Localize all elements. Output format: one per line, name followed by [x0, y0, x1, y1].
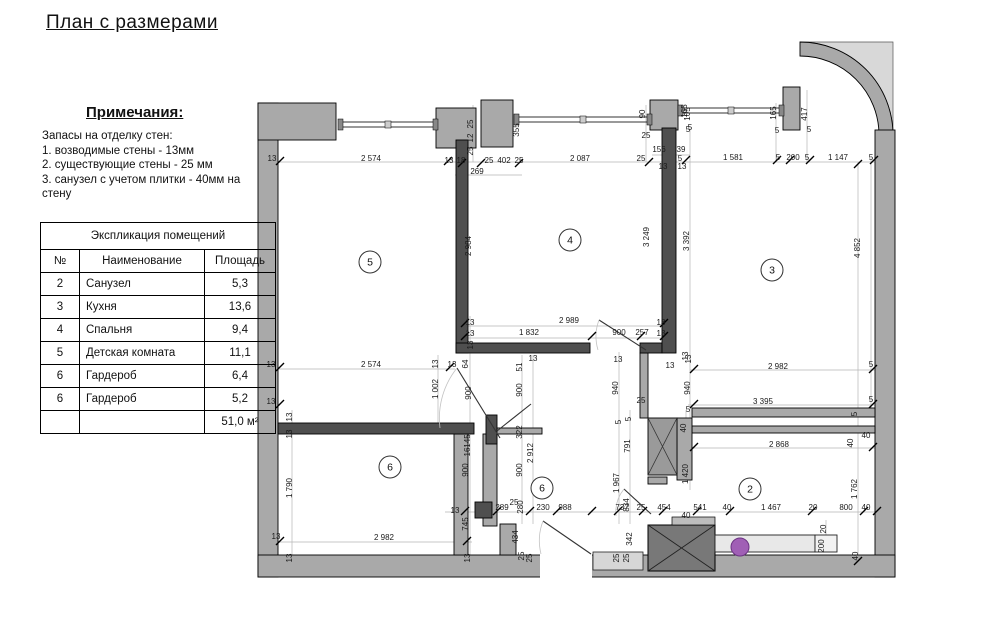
dim-label: 280 [516, 500, 525, 514]
dim-label: 2 574 [361, 360, 382, 369]
dim-label: 25 [642, 131, 651, 140]
notes-item: 1. возводимые стены - 13мм [42, 144, 272, 159]
cell-name: Спальня [80, 319, 205, 342]
dim-label: 900 [515, 463, 524, 477]
dim-label: 156 [652, 145, 666, 154]
dim-label: 13 [681, 351, 690, 360]
dim-label: 40 [846, 438, 855, 447]
cell-area: 5,3 [205, 273, 276, 296]
dim-label: 5 [624, 416, 633, 421]
cell-num: 6 [41, 365, 80, 388]
dim-label: 64 [461, 359, 470, 368]
door-entry [539, 521, 591, 554]
dim-label: 13 [285, 429, 294, 438]
pillar-3 [783, 87, 800, 130]
table-row: 3 Кухня 13,6 [41, 296, 276, 319]
notes-intro: Запасы на отделку стен: [42, 129, 272, 144]
dim-label: 145 [463, 434, 472, 448]
dim-label: 1 147 [828, 153, 849, 162]
table-title-row: Экспликация помещений [41, 223, 276, 250]
wall-top-block [481, 100, 513, 147]
cell-num: 2 [41, 273, 80, 296]
dim-label: 40 [682, 511, 691, 520]
dim-label: 1 832 [519, 328, 540, 337]
dim-label: 900 [515, 383, 524, 397]
dim-label: 20 [819, 524, 828, 533]
room-number: 6 [539, 483, 545, 495]
cell-area: 13,6 [205, 296, 276, 319]
cell-name: Кухня [80, 296, 205, 319]
dim-label: 25 [637, 154, 646, 163]
dim-label: 25 [466, 146, 475, 155]
dim-label: 900 [464, 386, 473, 400]
dim-label: 5 [869, 395, 874, 404]
dim-label: 2 868 [769, 440, 790, 449]
drain-fixture-icon [731, 538, 749, 556]
dim-label: 2 982 [374, 533, 395, 542]
dim-label: 200 [817, 539, 826, 553]
dim-label: 13 [451, 506, 460, 515]
dim-label: 51 [515, 362, 524, 371]
notes-block: Примечания: Запасы на отделку стен: 1. в… [42, 104, 272, 202]
dim-label: 90 [638, 109, 647, 118]
dim-label: 355 [512, 123, 521, 137]
table-row: 6 Гардероб 5,2 [41, 388, 276, 411]
dim-label: 5 [807, 125, 812, 134]
dim-label: 541 [693, 503, 707, 512]
dim-label: 25 [637, 396, 646, 405]
dim-labels-layer: 132 574131825402252692 08725156395131325… [267, 104, 874, 563]
dim-label: 5 [805, 153, 810, 162]
notes-item: 3. санузел с учетом плитки - 40мм на сте… [42, 173, 272, 202]
table-header-row: № Наименование Площадь [41, 250, 276, 273]
dim-label: 165 [769, 106, 778, 120]
table-total-row: 51,0 м² [41, 411, 276, 434]
dim-label: 269 [470, 167, 484, 176]
dim-label: 3 249 [642, 226, 651, 247]
dim-label: 40 [851, 551, 860, 560]
dim-label: 2 912 [526, 442, 535, 463]
dim-label: 2 982 [768, 362, 789, 371]
table-row: 2 Санузел 5,3 [41, 273, 276, 296]
dim-label: 5 [850, 411, 859, 416]
dim-label: 900 [461, 463, 470, 477]
dim-label: 13 [466, 329, 475, 338]
wall-bedroom-bottom [456, 343, 590, 353]
table-title: Экспликация помещений [41, 223, 276, 250]
dim-label: 3 395 [753, 397, 774, 406]
dim-label: 5 [869, 153, 874, 162]
room-explication-table: Экспликация помещений № Наименование Пло… [40, 222, 276, 434]
dim-label: 5 [869, 360, 874, 369]
pillar-2 [650, 100, 678, 130]
cell-name: Санузел [80, 273, 205, 296]
page-title: План с размерами [46, 12, 218, 34]
dim-label: 25 [515, 156, 524, 165]
dim-label: 434 [511, 530, 520, 544]
dim-label: 940 [611, 381, 620, 395]
cell-area: 11,1 [205, 342, 276, 365]
dim-label: 800 [839, 503, 853, 512]
dim-label: 322 [515, 425, 524, 439]
wall-bath-top [692, 426, 875, 433]
dim-label: 13 [463, 553, 472, 562]
dim-label: 2 574 [361, 154, 382, 163]
dim-label: 737 [615, 503, 629, 512]
dim-label: 2 984 [464, 235, 473, 256]
dim-label: 13 [445, 156, 454, 165]
dim-label: 16 [463, 447, 472, 456]
wall-children-bottom [278, 423, 474, 434]
dim-label: 745 [461, 517, 470, 531]
dim-label: 13 [678, 162, 687, 171]
cell-num: 3 [41, 296, 80, 319]
dim-label: 5 [686, 405, 691, 414]
dim-label: 39 [677, 145, 686, 154]
window-bedroom [514, 114, 652, 125]
dim-label: 165 [680, 104, 689, 118]
dim-label: 257 [635, 328, 649, 337]
dim-label: 13 [529, 354, 538, 363]
col-header-area: Площадь [205, 250, 276, 273]
dim-label: 13 [448, 360, 457, 369]
room-number: 4 [567, 235, 573, 247]
room-number: 2 [747, 484, 753, 496]
dim-label: 289 [495, 503, 509, 512]
table-row: 5 Детская комната 11,1 [41, 342, 276, 365]
dim-label: 1 581 [723, 153, 744, 162]
dim-label: 13 [614, 355, 623, 364]
dim-label: 2 989 [559, 316, 580, 325]
dim-label: 25 [466, 119, 475, 128]
wall-hall-right [640, 353, 648, 418]
cell-num: 4 [41, 319, 80, 342]
col-header-num: № [41, 250, 80, 273]
cell-area: 9,4 [205, 319, 276, 342]
dim-label: 13 [285, 553, 294, 562]
dim-label: 40 [862, 503, 871, 512]
dim-label: 40 [679, 423, 688, 432]
dim-label: 900 [612, 328, 626, 337]
ventilation-shaft-upper [648, 418, 677, 475]
bathtub [715, 535, 815, 552]
dim-label: 18 [457, 156, 466, 165]
ventilation-shaft-lower [648, 517, 715, 571]
wall-kitchen-bottom [692, 408, 875, 417]
dim-label: 5 [776, 153, 781, 162]
wall-shaft-jamb [648, 477, 667, 484]
entry-opening [540, 553, 592, 579]
dim-label: 13 [466, 340, 475, 349]
notes-heading: Примечания: [86, 104, 272, 121]
dim-label: 791 [623, 439, 632, 453]
cell-name: Детская комната [80, 342, 205, 365]
dim-label: 13 [666, 361, 675, 370]
dim-label: 1 790 [285, 477, 294, 498]
dim-label: 402 [497, 156, 511, 165]
dim-label: 417 [800, 107, 809, 121]
dim-label: 1 967 [612, 472, 621, 493]
dim-label: 25 [525, 553, 534, 562]
door-wardrobe [497, 404, 531, 431]
dim-label: 13 [466, 318, 475, 327]
new-walls [278, 100, 676, 518]
dim-label: 20 [809, 503, 818, 512]
room-number-layer: 543662 [359, 229, 783, 500]
cell-area: 6,4 [205, 365, 276, 388]
dim-label: 940 [683, 381, 692, 395]
table-row: 6 Гардероб 6,4 [41, 365, 276, 388]
dim-label: 25 [622, 553, 631, 562]
cell-name: Гардероб [80, 388, 205, 411]
dim-label: 13 [657, 329, 666, 338]
dim-label: 454 [657, 503, 671, 512]
dim-label: 1 002 [431, 378, 440, 399]
dim-label: 13 [272, 532, 281, 541]
dim-label: 200 [786, 153, 800, 162]
dim-label: 230 [536, 503, 550, 512]
room-number: 6 [387, 462, 393, 474]
dim-label: 40 [723, 503, 732, 512]
dim-label: 1 762 [850, 478, 859, 499]
cell-num: 5 [41, 342, 80, 365]
dim-label: 25 [612, 553, 621, 562]
dim-label: 13 [657, 318, 666, 327]
dim-label: 1 467 [761, 503, 782, 512]
dim-label: 3 392 [682, 230, 691, 251]
notes-item: 2. существующие стены - 25 мм [42, 158, 272, 173]
dim-label: 988 [558, 503, 572, 512]
dim-label: 25 [637, 503, 646, 512]
window-children-room [338, 119, 438, 130]
dim-label: 25 [485, 156, 494, 165]
dim-label: 5 [614, 419, 623, 424]
dim-label: 4 852 [853, 237, 862, 258]
room-number: 5 [367, 257, 373, 269]
cell-area: 5,2 [205, 388, 276, 411]
dim-label: 13 [285, 412, 294, 421]
dim-label: 342 [625, 532, 634, 546]
dim-label: 2 087 [570, 154, 591, 163]
dim-label: 5 [775, 126, 780, 135]
dim-label: 40 [862, 431, 871, 440]
dim-label: 1 420 [681, 463, 690, 484]
dim-label: 5 [686, 125, 691, 134]
floor-plan-page: { "page": {"title": "План с размерами"},… [0, 0, 1000, 628]
col-header-name: Наименование [80, 250, 205, 273]
table-row: 4 Спальня 9,4 [41, 319, 276, 342]
dim-label: 13 [431, 359, 440, 368]
windows [338, 105, 784, 130]
cell-num: 6 [41, 388, 80, 411]
door-jamb-2 [475, 502, 492, 518]
dim-label: 12 [466, 133, 475, 142]
room-number: 3 [769, 265, 775, 277]
dim-label: 13 [659, 162, 668, 171]
cell-name: Гардероб [80, 365, 205, 388]
total-area: 51,0 м² [205, 411, 276, 434]
